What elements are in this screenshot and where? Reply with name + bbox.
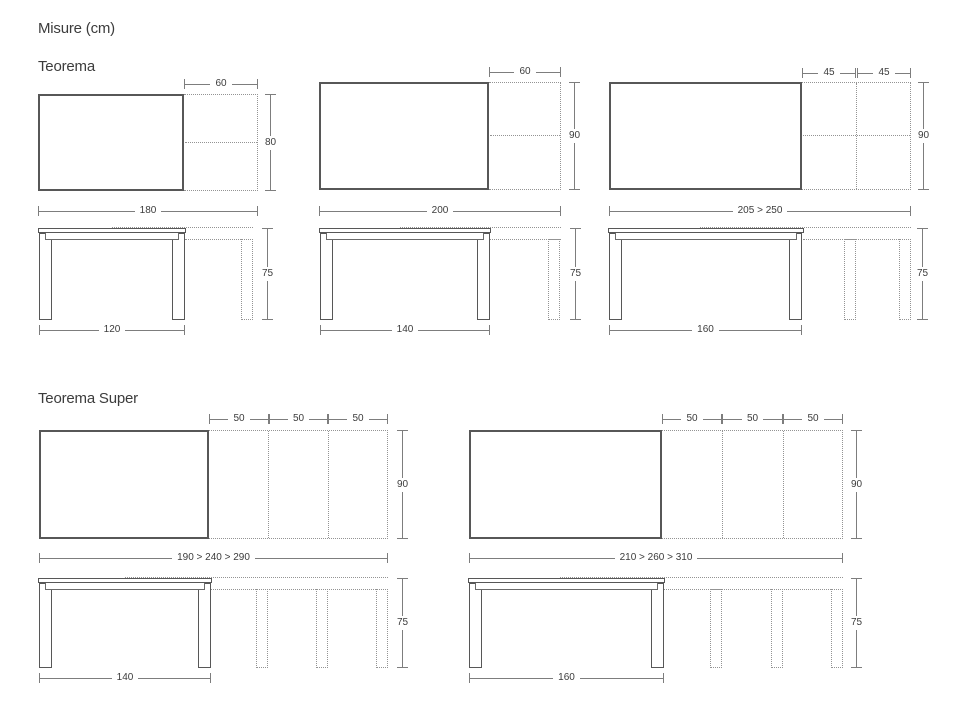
dim-value: 60 (210, 79, 231, 89)
dim-value: 50 (347, 414, 368, 424)
plan-depth-dim: 90 (918, 82, 929, 190)
dim-value: 50 (681, 414, 702, 424)
front-width-dim: 120 (39, 325, 185, 335)
front-apron (326, 233, 484, 240)
front-leg-right (198, 583, 211, 668)
dim-value: 190 > 240 > 290 (172, 553, 255, 563)
plan-extension-dim: 60 (184, 79, 258, 89)
plan-extension-divider-1 (722, 431, 723, 538)
plan-tabletop (39, 430, 209, 539)
plan-extension (489, 82, 561, 190)
front-width-dim: 160 (469, 673, 664, 683)
front-leg-left (469, 583, 482, 668)
front-apron (615, 233, 797, 240)
front-leg-left (39, 583, 52, 668)
plan-depth-dim: 90 (851, 430, 862, 539)
front-height-dim: 75 (570, 228, 581, 320)
plan-extension-divider (856, 83, 857, 189)
plan-length-dim: 180 (38, 206, 258, 216)
plan-extension-divider-1 (268, 431, 269, 538)
front-height-dim: 75 (851, 578, 862, 668)
plan-extension-dim: 60 (489, 67, 561, 77)
plan-length-dim: 200 (319, 206, 561, 216)
front-apron (45, 583, 205, 590)
plan-extension-divider-2 (328, 431, 329, 538)
front-extension-leg-3 (376, 589, 388, 668)
front-extension-leg-3 (831, 589, 843, 668)
front-extension-leg (241, 239, 253, 320)
dim-value: 140 (112, 673, 139, 683)
front-extension-leg-2 (316, 589, 328, 668)
front-extension-leg-2 (771, 589, 783, 668)
plan-extension (209, 430, 388, 539)
plan-extension-midline (803, 135, 910, 136)
dim-value: 180 (135, 206, 162, 216)
dim-value: 120 (99, 325, 126, 335)
plan-extension-dim-1: 45 (802, 68, 856, 78)
dim-value: 75 (570, 267, 581, 281)
section-title-teorema: Teorema (38, 58, 95, 75)
plan-length-dim: 190 > 240 > 290 (39, 553, 388, 563)
dim-value: 50 (288, 414, 309, 424)
plan-extension-dim-2: 50 (269, 414, 328, 424)
plan-depth-dim: 90 (569, 82, 580, 190)
dim-value: 210 > 260 > 310 (615, 553, 698, 563)
front-apron (475, 583, 658, 590)
plan-extension-dim-1: 50 (209, 414, 269, 424)
plan-extension-dim-3: 50 (783, 414, 843, 424)
dim-value: 75 (262, 267, 273, 281)
front-extension-leg-2 (899, 239, 911, 320)
plan-extension-dim-3: 50 (328, 414, 388, 424)
dim-value: 160 (692, 325, 719, 335)
dim-value: 90 (569, 129, 580, 143)
front-leg-left (39, 233, 52, 320)
dim-value: 90 (851, 478, 862, 492)
front-leg-left (320, 233, 333, 320)
dim-value: 160 (553, 673, 580, 683)
front-apron (45, 233, 179, 240)
front-extension-leg-1 (844, 239, 856, 320)
front-width-dim: 140 (39, 673, 211, 683)
front-extension-leg-1 (256, 589, 268, 668)
dim-value: 200 (427, 206, 454, 216)
dim-value: 50 (228, 414, 249, 424)
dim-value: 80 (265, 136, 276, 150)
dim-value: 75 (397, 616, 408, 630)
dim-value: 90 (918, 129, 929, 143)
front-leg-right (172, 233, 185, 320)
plan-extension-dim-2: 50 (722, 414, 783, 424)
front-height-dim: 75 (262, 228, 273, 320)
dim-value: 60 (514, 67, 535, 77)
dim-value: 45 (873, 68, 894, 78)
dim-value: 45 (818, 68, 839, 78)
front-extension-underline (803, 239, 911, 240)
measurements-sheet: Misure (cm) Teorema Teorema Super 60 80 … (0, 0, 970, 728)
front-extension-leg (548, 239, 560, 320)
plan-extension-midline (490, 135, 560, 136)
plan-tabletop (469, 430, 662, 539)
plan-extension-dim-2: 45 (857, 68, 911, 78)
plan-tabletop (38, 94, 184, 191)
dim-value: 75 (917, 267, 928, 281)
page-title: Misure (cm) (38, 20, 115, 37)
dim-value: 50 (742, 414, 763, 424)
front-extension-leg-1 (710, 589, 722, 668)
front-leg-right (477, 233, 490, 320)
plan-length-dim: 210 > 260 > 310 (469, 553, 843, 563)
dim-value: 90 (397, 478, 408, 492)
plan-extension-divider-2 (783, 431, 784, 538)
front-width-dim: 140 (320, 325, 490, 335)
front-width-dim: 160 (609, 325, 802, 335)
plan-depth-dim: 90 (397, 430, 408, 539)
front-height-dim: 75 (397, 578, 408, 668)
section-title-teorema-super: Teorema Super (38, 390, 138, 407)
plan-extension-midline (185, 142, 257, 143)
dim-value: 50 (802, 414, 823, 424)
dim-value: 75 (851, 616, 862, 630)
plan-tabletop (609, 82, 802, 190)
front-extension-underline (211, 589, 388, 590)
front-leg-left (609, 233, 622, 320)
front-leg-right (789, 233, 802, 320)
plan-length-dim: 205 > 250 (609, 206, 911, 216)
plan-tabletop (319, 82, 489, 190)
front-leg-right (651, 583, 664, 668)
plan-depth-dim: 80 (265, 94, 276, 191)
front-height-dim: 75 (917, 228, 928, 320)
dim-value: 205 > 250 (733, 206, 788, 216)
dim-value: 140 (392, 325, 419, 335)
front-extension-underline (664, 589, 843, 590)
plan-extension (662, 430, 843, 539)
plan-extension-dim-1: 50 (662, 414, 722, 424)
